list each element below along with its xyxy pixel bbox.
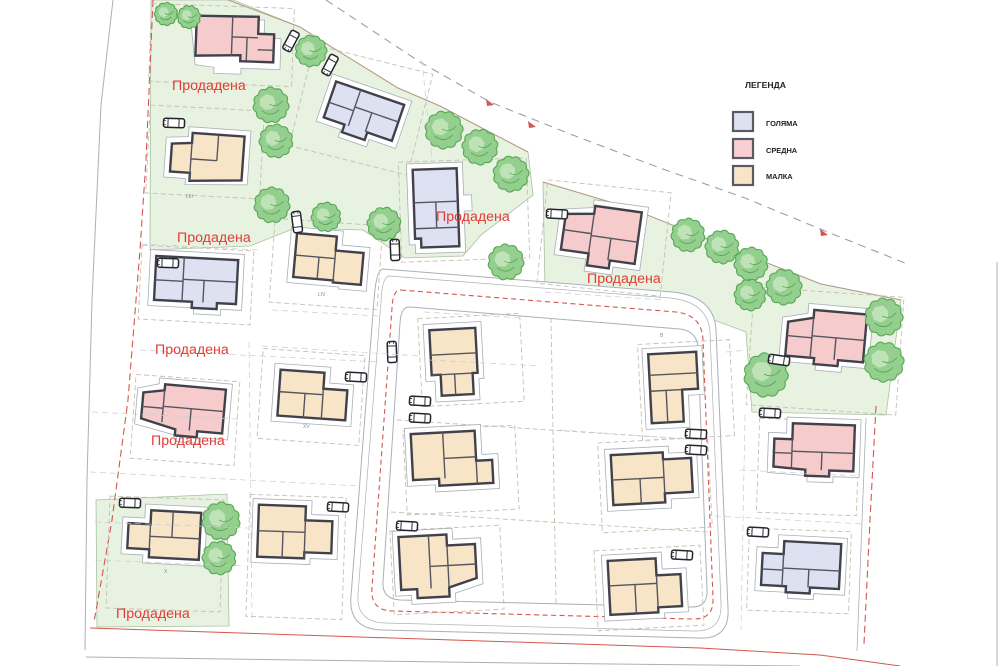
svg-text:ГОЛЯМА: ГОЛЯМА [766,119,798,128]
svg-text:МАЛКА: МАЛКА [766,172,793,181]
svg-text:Продадена: Продадена [177,230,251,246]
svg-text:Продадена: Продадена [436,209,510,225]
svg-text:Продадена: Продадена [116,606,190,622]
svg-text:LIV: LIV [318,292,326,298]
svg-text:Продадена: Продадена [587,271,661,287]
svg-text:XV: XV [303,424,310,430]
svg-text:Продадена: Продадена [151,433,225,449]
svg-text:СРЕДНА: СРЕДНА [766,146,798,155]
svg-text:LIII: LIII [186,194,193,200]
svg-text:ЛЕГЕНДА: ЛЕГЕНДА [745,80,786,90]
svg-text:Продадена: Продадена [155,342,229,358]
svg-text:Продадена: Продадена [172,78,246,94]
